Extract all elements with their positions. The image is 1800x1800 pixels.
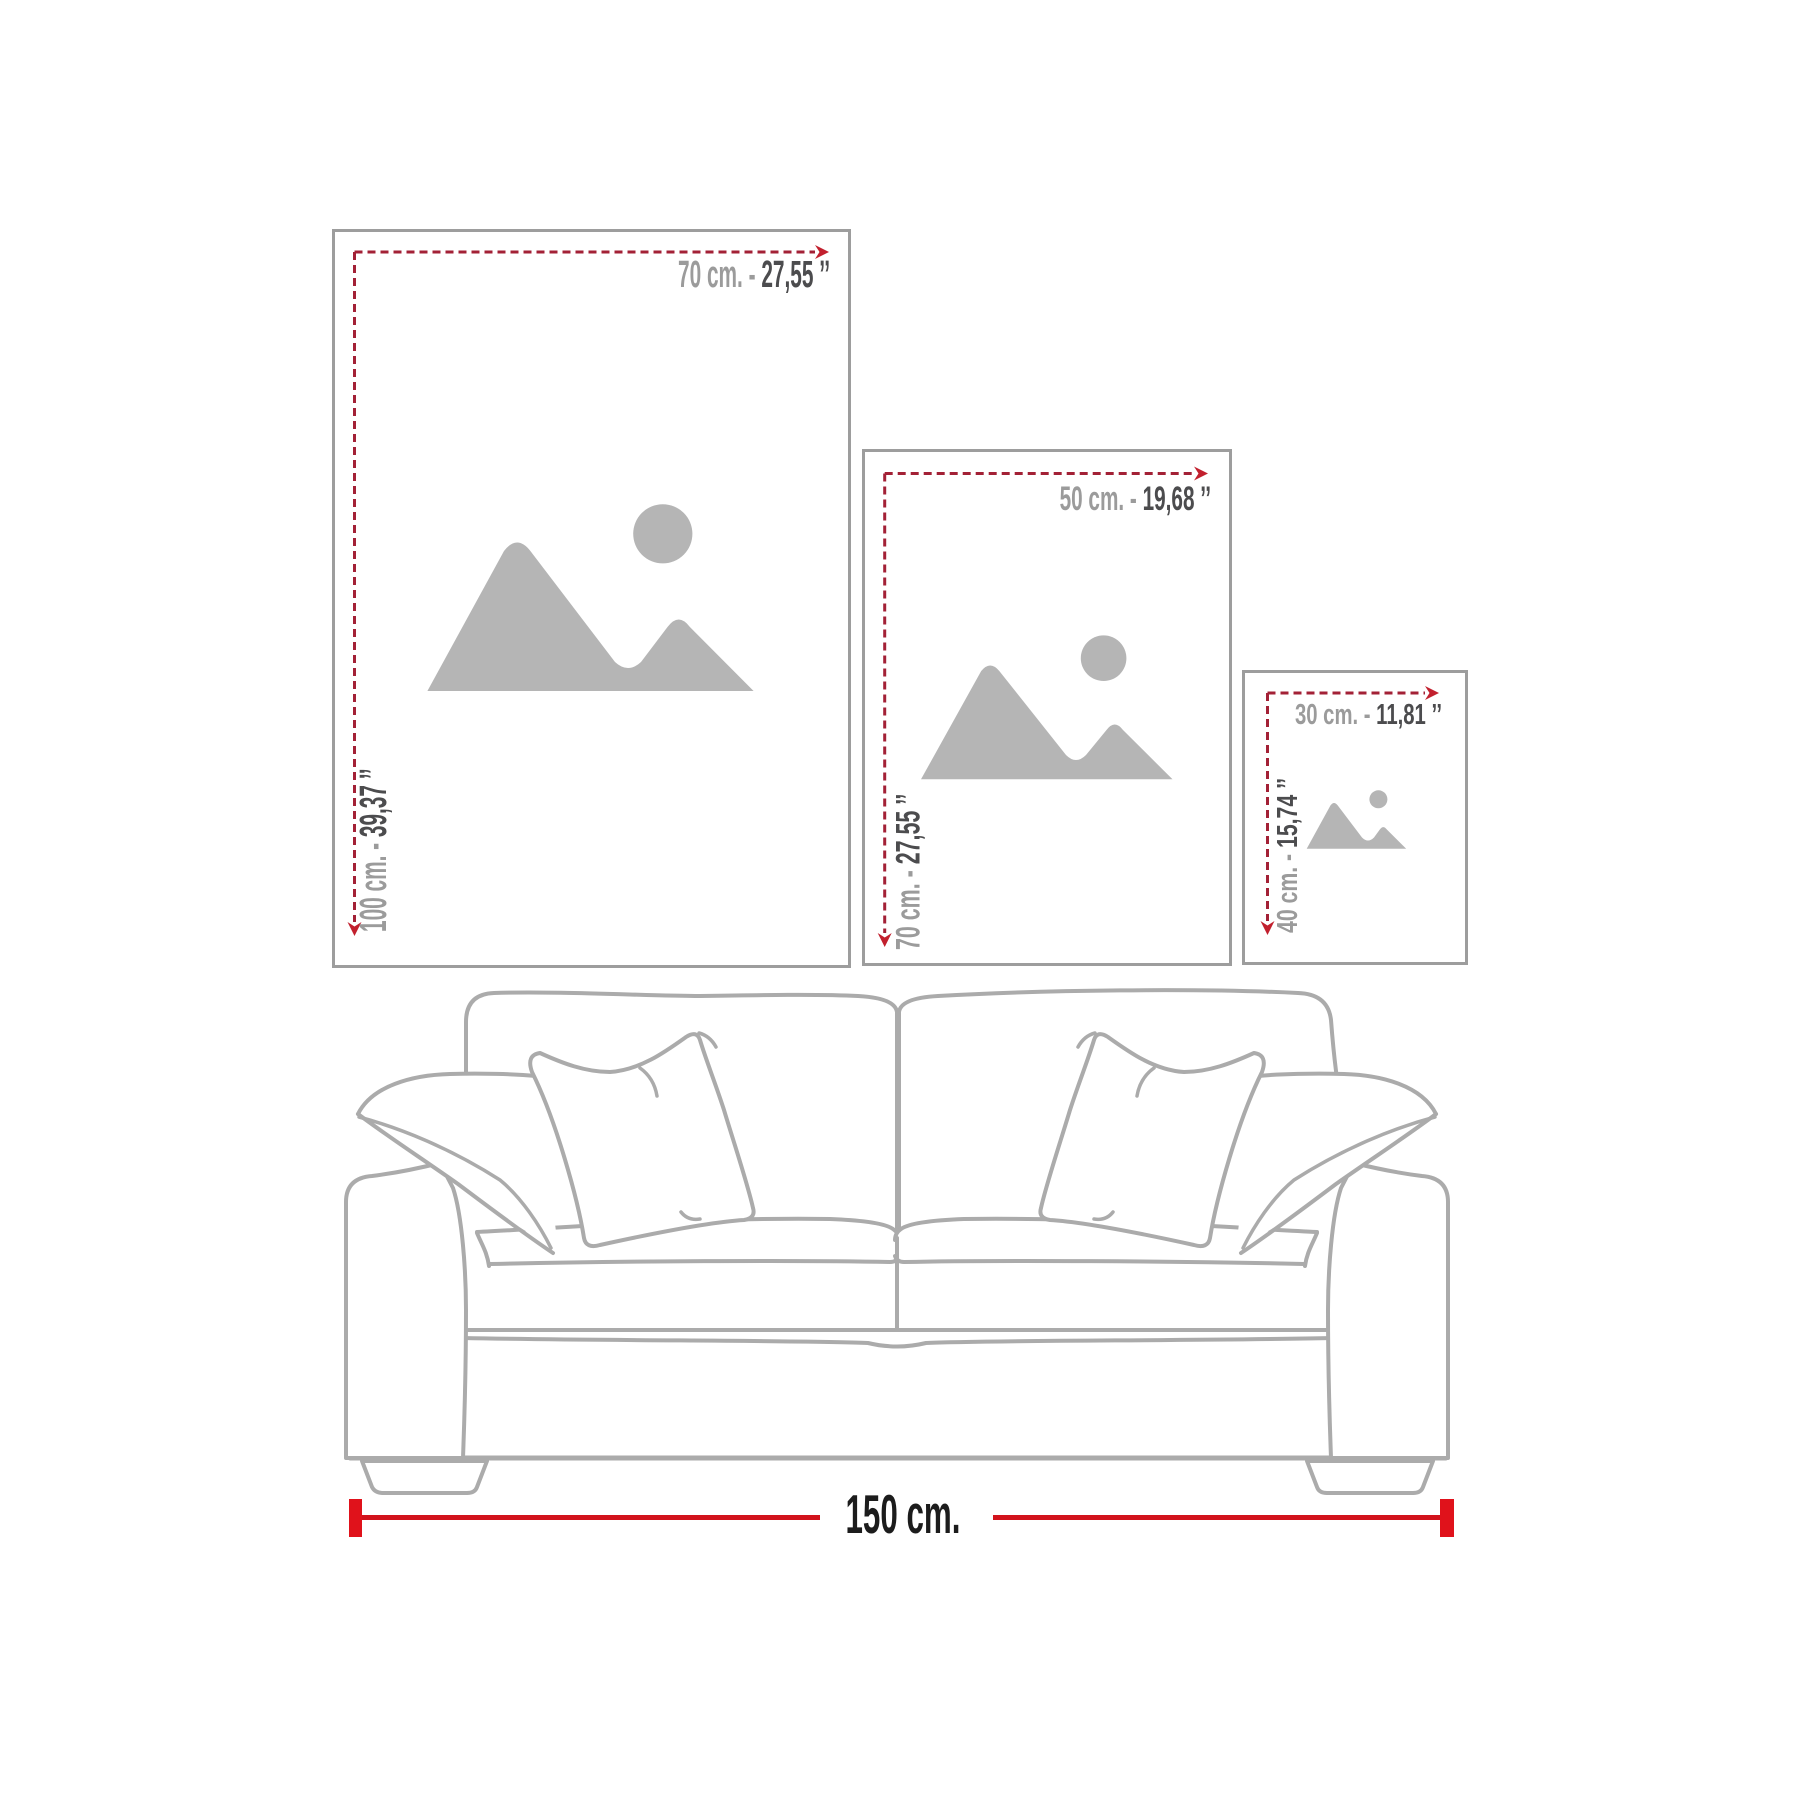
svg-text:100 cm. - 39,37 ’’: 100 cm. - 39,37 ’’ (353, 768, 395, 932)
svg-text:70 cm. - 27,55 ’’: 70 cm. - 27,55 ’’ (890, 794, 928, 950)
svg-text:150 cm.: 150 cm. (845, 1484, 960, 1545)
svg-text:50 cm. - 19,68 ’’: 50 cm. - 19,68 ’’ (1060, 480, 1211, 517)
svg-text:30 cm. - 11,81 ’’: 30 cm. - 11,81 ’’ (1295, 699, 1442, 731)
svg-text:40 cm. - 15,74 ’’: 40 cm. - 15,74 ’’ (1272, 778, 1304, 933)
svg-text:70 cm. - 27,55 ’’: 70 cm. - 27,55 ’’ (678, 254, 830, 296)
